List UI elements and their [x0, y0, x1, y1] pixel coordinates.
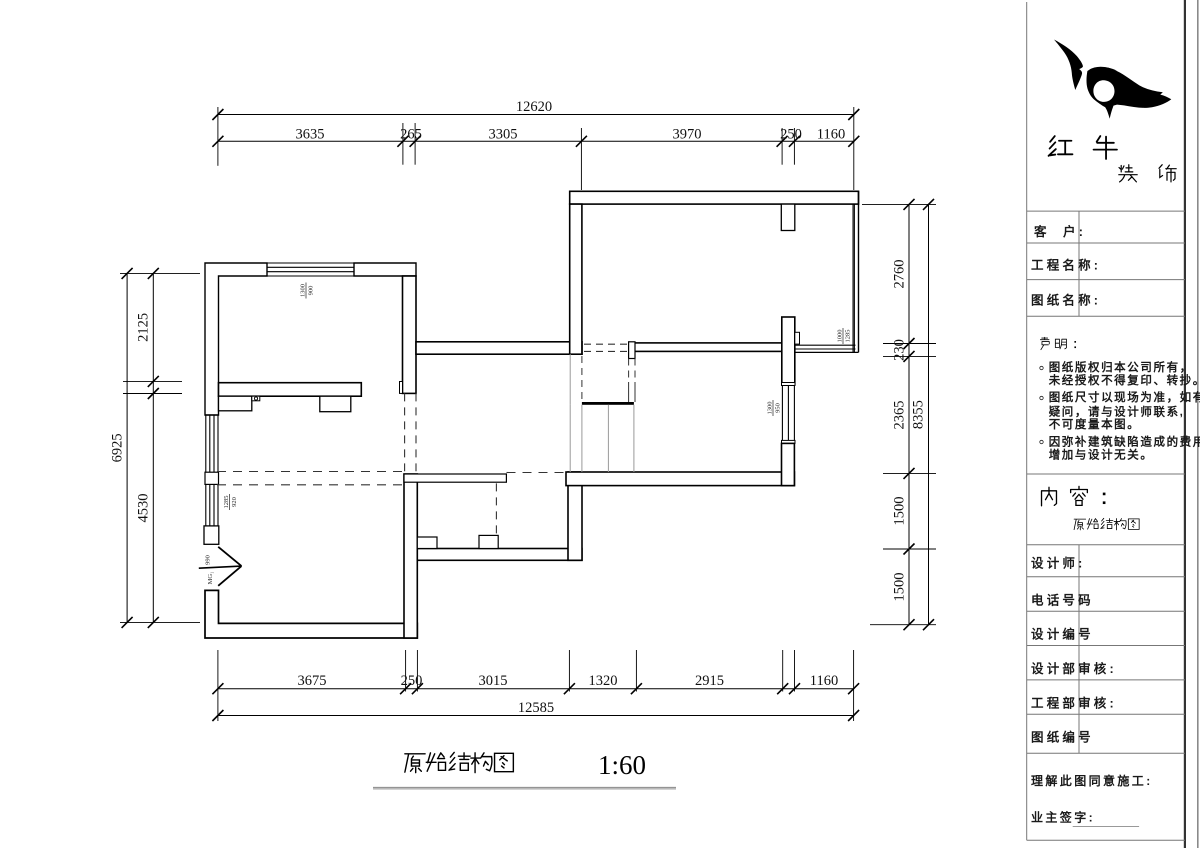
svg-text:1320: 1320 [589, 673, 618, 689]
svg-text:2365: 2365 [892, 401, 908, 430]
svg-text:MG₁: MG₁ [207, 572, 214, 585]
svg-text:理解此图同意施工:: 理解此图同意施工: [1031, 773, 1153, 788]
svg-text:250: 250 [401, 673, 423, 689]
svg-text:电话号码: 电话号码 [1031, 593, 1094, 608]
svg-text:990: 990 [205, 555, 212, 565]
svg-text:1285: 1285 [845, 330, 852, 343]
svg-text:265: 265 [400, 127, 422, 143]
svg-text:12620: 12620 [516, 99, 552, 115]
svg-text:工程名称:: 工程名称: [1031, 258, 1101, 273]
svg-text:业主签字:: 业主签字: [1031, 810, 1095, 825]
svg-text:920: 920 [231, 497, 238, 507]
svg-text:230: 230 [892, 339, 908, 361]
svg-text:12585: 12585 [518, 700, 554, 716]
svg-text:工程部审核:: 工程部审核: [1031, 696, 1117, 711]
svg-text:2915: 2915 [695, 673, 724, 689]
svg-text:增加与设计无关。: 增加与设计无关。 [1049, 448, 1154, 462]
svg-text:因弥补建筑缺陷造成的费用: 因弥补建筑缺陷造成的费用 [1049, 435, 1200, 449]
svg-text:1160: 1160 [817, 127, 845, 143]
svg-text:3305: 3305 [489, 127, 518, 143]
svg-text:1500: 1500 [892, 573, 908, 602]
svg-text:2125: 2125 [136, 313, 152, 342]
svg-text:1000: 1000 [837, 330, 844, 343]
svg-text:3970: 3970 [673, 127, 702, 143]
svg-text:设计部审核:: 设计部审核: [1031, 661, 1117, 676]
svg-text:户:: 户: [1063, 224, 1086, 239]
svg-text:1500: 1500 [892, 497, 908, 526]
svg-text:1285: 1285 [223, 496, 230, 509]
svg-text:不可度量本图。: 不可度量本图。 [1049, 417, 1141, 431]
svg-text:250: 250 [780, 127, 802, 143]
svg-text:1160: 1160 [810, 673, 838, 689]
svg-text:1:60: 1:60 [598, 750, 646, 780]
svg-text:设计师:: 设计师: [1031, 556, 1085, 571]
svg-text:未经授权不得复印、转抄。: 未经授权不得复印、转抄。 [1048, 373, 1200, 387]
svg-text:客: 客 [1033, 224, 1050, 239]
svg-text:2760: 2760 [892, 260, 908, 289]
svg-text:图纸编号: 图纸编号 [1031, 730, 1094, 745]
svg-text:1300: 1300 [767, 402, 774, 415]
svg-text:4530: 4530 [136, 494, 152, 523]
svg-text:图纸名称:: 图纸名称: [1031, 293, 1101, 308]
svg-text:疑问，请与设计师联系,: 疑问，请与设计师联系, [1049, 405, 1185, 419]
svg-text:图纸尺寸以现场为准，如有: 图纸尺寸以现场为准，如有 [1049, 390, 1200, 404]
svg-text:8355: 8355 [911, 400, 927, 429]
svg-text:设计编号: 设计编号 [1031, 627, 1094, 642]
svg-text:3675: 3675 [298, 673, 327, 689]
svg-text:6925: 6925 [110, 433, 126, 462]
svg-text:900: 900 [308, 286, 315, 296]
svg-text:1300: 1300 [300, 284, 307, 297]
svg-text:950: 950 [775, 403, 782, 413]
svg-text:3635: 3635 [296, 127, 325, 143]
svg-text:3015: 3015 [479, 673, 508, 689]
svg-text:图纸版权归本公司所有，: 图纸版权归本公司所有， [1049, 360, 1193, 374]
